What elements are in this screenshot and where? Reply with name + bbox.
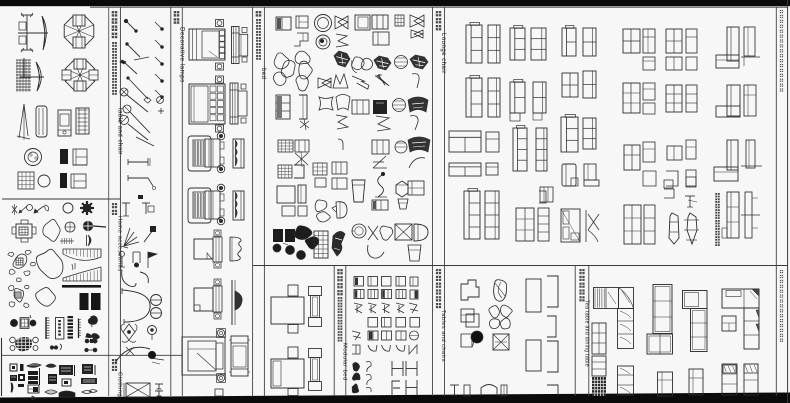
svg-text:Clothing: Clothing <box>116 372 122 397</box>
svg-text:Modular bed: Modular bed <box>342 343 348 381</box>
svg-text:Lounge chair: Lounge chair <box>440 33 446 74</box>
svg-text:bed: bed <box>260 68 266 80</box>
svg-text:Decorative lamps: Decorative lamps <box>178 27 185 83</box>
svg-text:Tea table and dining table: Tea table and dining table <box>584 300 590 367</box>
svg-text:Tables and chairs: Tables and chairs <box>440 310 446 362</box>
svg-text:Home accessories: Home accessories <box>116 216 122 272</box>
svg-text:table and chair: table and chair <box>117 108 123 155</box>
